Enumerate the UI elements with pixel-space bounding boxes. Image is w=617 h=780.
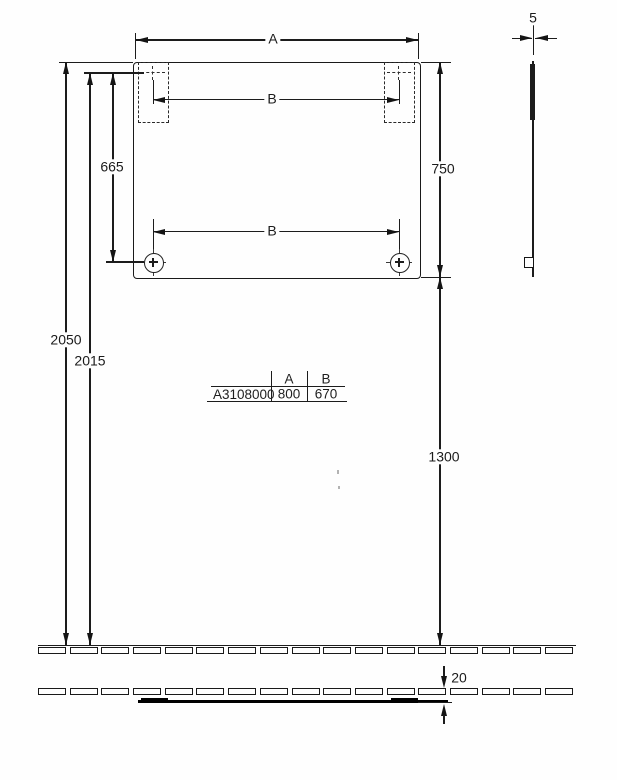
tile — [260, 688, 288, 695]
side-view-clip — [524, 257, 534, 268]
dim-750-label: 750 — [428, 161, 457, 176]
dim-a-arrow-left — [136, 37, 148, 43]
dim-b-bottom-arrow-left — [153, 229, 165, 235]
dim-665-label: 665 — [97, 159, 126, 174]
dim-5-label: 5 — [526, 10, 540, 25]
dim-1300-arrow-top — [437, 277, 443, 289]
tile — [101, 647, 129, 654]
dim-1300-arrow-bottom — [437, 633, 443, 645]
tile — [450, 688, 478, 695]
dim-5-arrow-right — [536, 35, 548, 41]
tile — [38, 647, 66, 654]
tile — [482, 647, 510, 654]
dim-750-arrow-top — [437, 62, 443, 74]
bracket-left-crosshair-v — [152, 66, 153, 80]
dim-20-arrow-top — [441, 676, 447, 688]
dim-5-arrow-left — [520, 35, 532, 41]
bottom-clip-left — [141, 698, 168, 701]
tile — [450, 647, 478, 654]
tile — [513, 688, 541, 695]
dim-a-label: A — [265, 31, 280, 46]
dim-2015-arrow-bottom — [87, 633, 93, 645]
bracket-right-crosshair-v — [398, 66, 399, 80]
mirror-bottom-view-profile — [138, 700, 448, 703]
dim-665-arrow-bottom — [110, 250, 116, 262]
table-header-a: A — [284, 372, 293, 386]
tile — [165, 647, 193, 654]
table-value-a: 800 — [278, 387, 301, 401]
dim-750-ext-bottom — [421, 277, 451, 278]
tile — [323, 688, 351, 695]
dim-b-bottom-label: B — [264, 223, 279, 238]
tile — [323, 647, 351, 654]
tile — [101, 688, 129, 695]
dim-2015-arrow-top — [87, 73, 93, 85]
tile — [228, 688, 256, 695]
dim-2050-arrow-top — [63, 62, 69, 74]
tile — [355, 647, 383, 654]
tile — [133, 688, 161, 695]
tile — [196, 688, 224, 695]
scan-speck — [337, 470, 339, 474]
dim-1300-label: 1300 — [425, 449, 462, 464]
tile — [387, 688, 415, 695]
screw-right-slot-v — [398, 258, 401, 267]
dim-2050-ext-top — [59, 62, 133, 63]
tile — [292, 688, 320, 695]
dim-2015-label: 2015 — [71, 353, 108, 368]
tile — [228, 647, 256, 654]
table-header-b: B — [321, 372, 330, 386]
screw-left-slot-v — [152, 258, 155, 267]
tile — [38, 688, 66, 695]
tile — [545, 688, 573, 695]
side-view-bracket-profile — [530, 64, 535, 120]
dim-20-label: 20 — [448, 670, 470, 685]
tile — [482, 688, 510, 695]
bottom-clip-right — [391, 698, 418, 701]
tile — [70, 647, 98, 654]
tile — [418, 688, 446, 695]
dim-750-arrow-bottom — [437, 265, 443, 277]
dim-2050-arrow-bottom — [63, 633, 69, 645]
dim-2050-label: 2050 — [47, 332, 84, 347]
tile — [418, 647, 446, 654]
table-divider-2 — [307, 371, 308, 401]
floor-tile-row-upper — [38, 647, 576, 654]
dim-665-arrow-top — [110, 73, 116, 85]
dim-b-top-label: B — [264, 91, 279, 106]
tile — [513, 647, 541, 654]
dim-b-top-arrow-right — [387, 97, 399, 103]
wall-tile-row-lower — [38, 688, 576, 695]
tile — [260, 647, 288, 654]
table-value-b: 670 — [315, 387, 338, 401]
tile — [196, 647, 224, 654]
dim-b-bottom-arrow-right — [387, 229, 399, 235]
technical-drawing-canvas: B B A 750 1300 2050 2015 665 — [0, 0, 617, 780]
tile — [545, 647, 573, 654]
tile — [70, 688, 98, 695]
dim-a-arrow-right — [406, 37, 418, 43]
dim-2050-line — [65, 62, 66, 645]
dim-20-line-bottom — [443, 715, 444, 724]
tile — [387, 647, 415, 654]
tile — [292, 647, 320, 654]
scan-speck — [338, 486, 340, 489]
dim-750-ext-top — [421, 62, 451, 63]
tile — [355, 688, 383, 695]
tile — [133, 647, 161, 654]
dim-b-top-arrow-left — [153, 97, 165, 103]
table-model-number: A3108000 — [213, 388, 275, 402]
dim-5-ext — [533, 24, 534, 55]
tile — [165, 688, 193, 695]
